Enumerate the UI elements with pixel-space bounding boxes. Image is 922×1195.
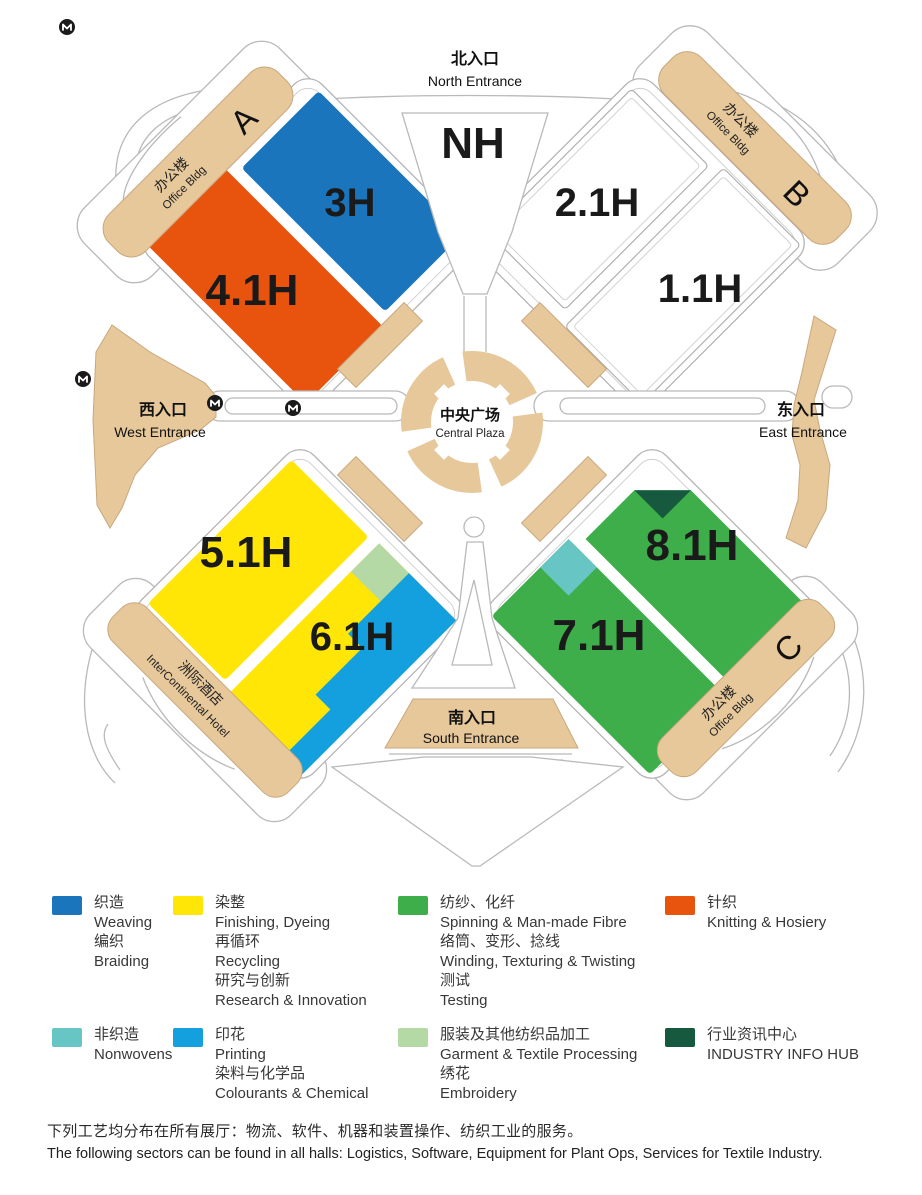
legend-line: 染料与化学品 (215, 1064, 368, 1084)
legend-text-garment: 服装及其他纺织品加工 Garment & Textile Processing … (440, 1025, 637, 1103)
legend-item-infohub: 行业资讯中心 INDUSTRY INFO HUB (665, 1025, 859, 1064)
legend-line: 服装及其他纺织品加工 (440, 1025, 637, 1045)
legend-line: 再循环 (215, 932, 367, 952)
legend-line: 测试 (440, 971, 635, 991)
footnote-zh: 下列工艺均分布在所有展厅：物流、软件、机器和装置操作、纺织工业的服务。 (47, 1120, 583, 1141)
corridor-east (534, 391, 800, 421)
legend-item-knitting: 针织 Knitting & Hosiery (665, 893, 826, 932)
legend-swatch-infohub (665, 1028, 695, 1047)
legend-text-finishing: 染整 Finishing, Dyeing 再循环 Recycling 研究与创新… (215, 893, 367, 1010)
legend-text-knitting: 针织 Knitting & Hosiery (707, 893, 826, 932)
legend-line: Printing (215, 1045, 368, 1065)
legend-line: 绣花 (440, 1064, 637, 1084)
legend-line: Winding, Texturing & Twisting (440, 952, 635, 972)
legend-line: 非织造 (94, 1025, 172, 1045)
legend-line: 纺纱、化纤 (440, 893, 635, 913)
legend-line: 行业资讯中心 (707, 1025, 859, 1045)
legend-line: 络筒、变形、捻线 (440, 932, 635, 952)
east-entrance-label-en: East Entrance (759, 424, 847, 440)
legend-line: Garment & Textile Processing (440, 1045, 637, 1065)
legend-line: Braiding (94, 952, 152, 972)
metro-icon-circle (59, 19, 75, 35)
legend-swatch-printing (173, 1028, 203, 1047)
legend-text-nonwovens: 非织造 Nonwovens (94, 1025, 172, 1064)
legend-item-weaving: 织造 Weaving 编织 Braiding (52, 893, 152, 971)
hall-21h-label: 2.1H (555, 181, 640, 225)
legend-line: INDUSTRY INFO HUB (707, 1045, 859, 1065)
legend-swatch-weaving (52, 896, 82, 915)
hall-71h-label: 7.1H (553, 611, 646, 660)
legend-item-garment: 服装及其他纺织品加工 Garment & Textile Processing … (398, 1025, 637, 1103)
legend-line: 染整 (215, 893, 367, 913)
metro-icon-circle (285, 400, 301, 416)
venue-map: 办公楼 Office Bldg A 办公楼 Office Bldg B 办公楼 … (0, 0, 922, 885)
legend-line: Recycling (215, 952, 367, 972)
legend-line: 印花 (215, 1025, 368, 1045)
legend-line: 研究与创新 (215, 971, 367, 991)
footnote-en: The following sectors can be found in al… (47, 1146, 823, 1162)
legend-line: Testing (440, 991, 635, 1011)
north-entrance-label-zh: 北入口 (451, 50, 499, 68)
legend-item-finishing: 染整 Finishing, Dyeing 再循环 Recycling 研究与创新… (173, 893, 367, 1010)
south-entrance-label-en: South Entrance (423, 730, 520, 746)
legend-swatch-finishing (173, 896, 203, 915)
legend-line: Finishing, Dyeing (215, 913, 367, 933)
west-entrance-label-zh: 西入口 (139, 401, 187, 419)
west-entrance-label-en: West Entrance (114, 424, 206, 440)
hall-41h-label: 4.1H (206, 266, 299, 315)
legend-swatch-knitting (665, 896, 695, 915)
metro-icon-circle (75, 371, 91, 387)
metro-icon (285, 400, 301, 416)
metro-icon-circle (207, 395, 223, 411)
legend-line: Nonwovens (94, 1045, 172, 1065)
central-plaza-label-en: Central Plaza (435, 428, 505, 440)
hall-11h-label: 1.1H (658, 267, 743, 311)
legend-item-printing: 印花 Printing 染料与化学品 Colourants & Chemical (173, 1025, 368, 1103)
legend-text-weaving: 织造 Weaving 编织 Braiding (94, 893, 152, 971)
hall-61h-label: 6.1H (310, 615, 395, 659)
metro-icon (207, 395, 223, 411)
legend-line: 编织 (94, 932, 152, 952)
legend-swatch-garment (398, 1028, 428, 1047)
legend-text-spinning: 纺纱、化纤 Spinning & Man-made Fibre 络筒、变形、捻线… (440, 893, 635, 1010)
legend-line: Research & Innovation (215, 991, 367, 1011)
legend-swatch-spinning (398, 896, 428, 915)
legend-line: 织造 (94, 893, 152, 913)
north-entrance-label-en: North Entrance (428, 73, 522, 89)
legend-line: 针织 (707, 893, 826, 913)
hall-3h-label: 3H (324, 181, 375, 225)
legend-item-spinning: 纺纱、化纤 Spinning & Man-made Fibre 络筒、变形、捻线… (398, 893, 635, 1010)
walkway-south-circle (464, 517, 484, 537)
legend-line: Colourants & Chemical (215, 1084, 368, 1104)
central-plaza-label-zh: 中央广场 (440, 406, 500, 424)
legend-line: Weaving (94, 913, 152, 933)
legend-line: Embroidery (440, 1084, 637, 1104)
metro-icon (59, 19, 75, 35)
legend-line: Knitting & Hosiery (707, 913, 826, 933)
legend-item-nonwovens: 非织造 Nonwovens (52, 1025, 172, 1064)
metro-icon (75, 371, 91, 387)
south-entrance-label-zh: 南入口 (448, 708, 496, 727)
legend-text-infohub: 行业资讯中心 INDUSTRY INFO HUB (707, 1025, 859, 1064)
legend-swatch-nonwovens (52, 1028, 82, 1047)
legend-line: Spinning & Man-made Fibre (440, 913, 635, 933)
hall-nh-label: NH (441, 119, 505, 168)
hall-51h-label: 5.1H (200, 528, 293, 577)
corridor-west (205, 391, 410, 421)
east-entrance-label-zh: 东入口 (777, 400, 825, 419)
venue-map-page: 办公楼 Office Bldg A 办公楼 Office Bldg B 办公楼 … (0, 0, 922, 1195)
hall-81h-label: 8.1H (646, 521, 739, 570)
legend-text-printing: 印花 Printing 染料与化学品 Colourants & Chemical (215, 1025, 368, 1103)
